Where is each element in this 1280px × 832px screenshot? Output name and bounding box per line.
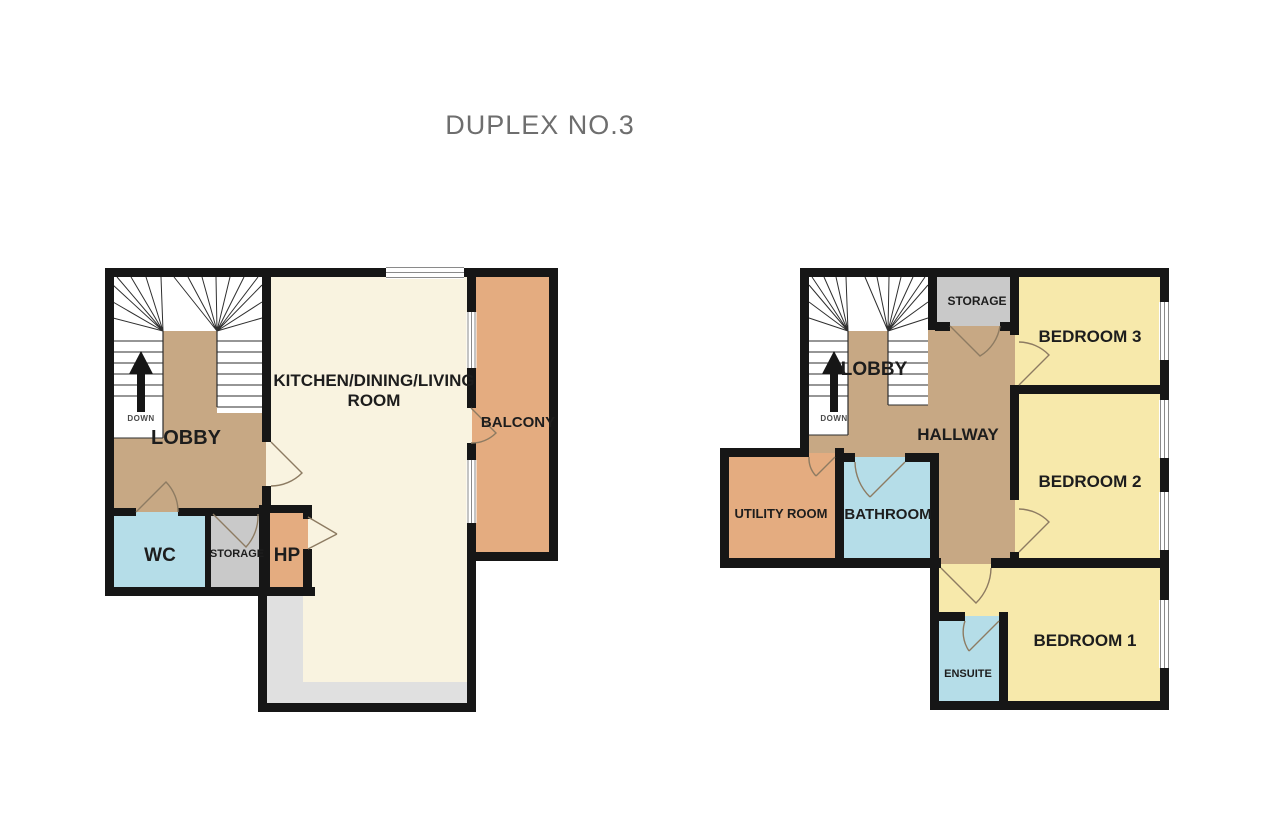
wall-segment (105, 268, 388, 277)
window (1159, 302, 1170, 360)
wall-segment (1010, 385, 1169, 394)
ground-lobby-label: LOBBY (151, 427, 222, 449)
ground-wc-label: WC (144, 545, 176, 566)
wall-segment (467, 272, 476, 312)
stair-landing (163, 331, 217, 438)
window (467, 312, 477, 368)
wall-segment (105, 268, 114, 596)
wall-segment (462, 268, 558, 277)
wall-segment (467, 443, 476, 460)
wall-segment (720, 448, 729, 568)
wall-segment (930, 568, 939, 710)
wall-segment (467, 552, 476, 712)
wall-segment (935, 612, 965, 621)
wall-segment (1010, 552, 1019, 568)
wall-segment (835, 448, 844, 568)
wall-segment (930, 701, 1169, 710)
first-storage-label: STORAGE (947, 294, 1006, 308)
wall-segment (258, 587, 267, 712)
window (467, 460, 477, 523)
first-bedroom2-label: BEDROOM 2 (1039, 472, 1142, 491)
first-down-label: DOWN (820, 414, 847, 423)
wall-segment (905, 453, 935, 462)
first-ensuite-floor (935, 616, 999, 704)
wall-segment (720, 558, 941, 568)
wall-segment (928, 268, 937, 330)
wall-segment (110, 508, 136, 516)
first-floor-plan: DOWN (720, 268, 1170, 710)
wall-segment (258, 703, 476, 712)
window (386, 266, 464, 279)
wall-segment (1010, 268, 1019, 335)
window (1159, 492, 1170, 550)
window (1159, 400, 1170, 458)
first-hallway-label: HALLWAY (917, 425, 999, 444)
wall-segment (178, 508, 266, 516)
wall-segment (800, 268, 1169, 277)
wall-segment (720, 448, 809, 457)
first-lobby-label: LOBBY (841, 359, 908, 380)
floorplan-page: DUPLEX NO.3 DOWN (0, 0, 1280, 832)
wall-segment (262, 268, 271, 442)
ground-down-label: DOWN (127, 414, 154, 423)
wall-segment (467, 552, 558, 561)
stair-landing (848, 331, 888, 435)
wall-segment (303, 505, 312, 519)
wall-segment (800, 268, 809, 457)
first-bathroom-label: BATHROOM (844, 506, 931, 523)
wall-segment (303, 549, 312, 592)
ground-floor-plan: DOWN (105, 266, 558, 712)
floorplan-canvas: DOWN (0, 0, 1280, 832)
ground-hp-label: HP (274, 545, 301, 566)
first-utility-label: UTILITY ROOM (735, 506, 828, 521)
wall-segment (999, 612, 1008, 710)
wall-segment (467, 523, 476, 552)
ground-kitchen-label-line1: KITCHEN/DINING/LIVING (273, 371, 474, 390)
ground-kitchen-floor-extension (303, 596, 472, 682)
ground-storage-label: STORAGE (210, 548, 264, 560)
first-bedroom3-label: BEDROOM 3 (1039, 327, 1142, 346)
window (1159, 600, 1170, 668)
first-ensuite-label: ENSUITE (944, 668, 992, 680)
wall-segment (1010, 394, 1019, 500)
first-bedroom1-label: BEDROOM 1 (1034, 631, 1137, 650)
first-hallway-floor (935, 326, 1015, 568)
ground-balcony-label: BALCONY (481, 414, 555, 431)
ground-kitchen-label-line2: ROOM (348, 391, 401, 410)
wall-segment (935, 322, 950, 331)
